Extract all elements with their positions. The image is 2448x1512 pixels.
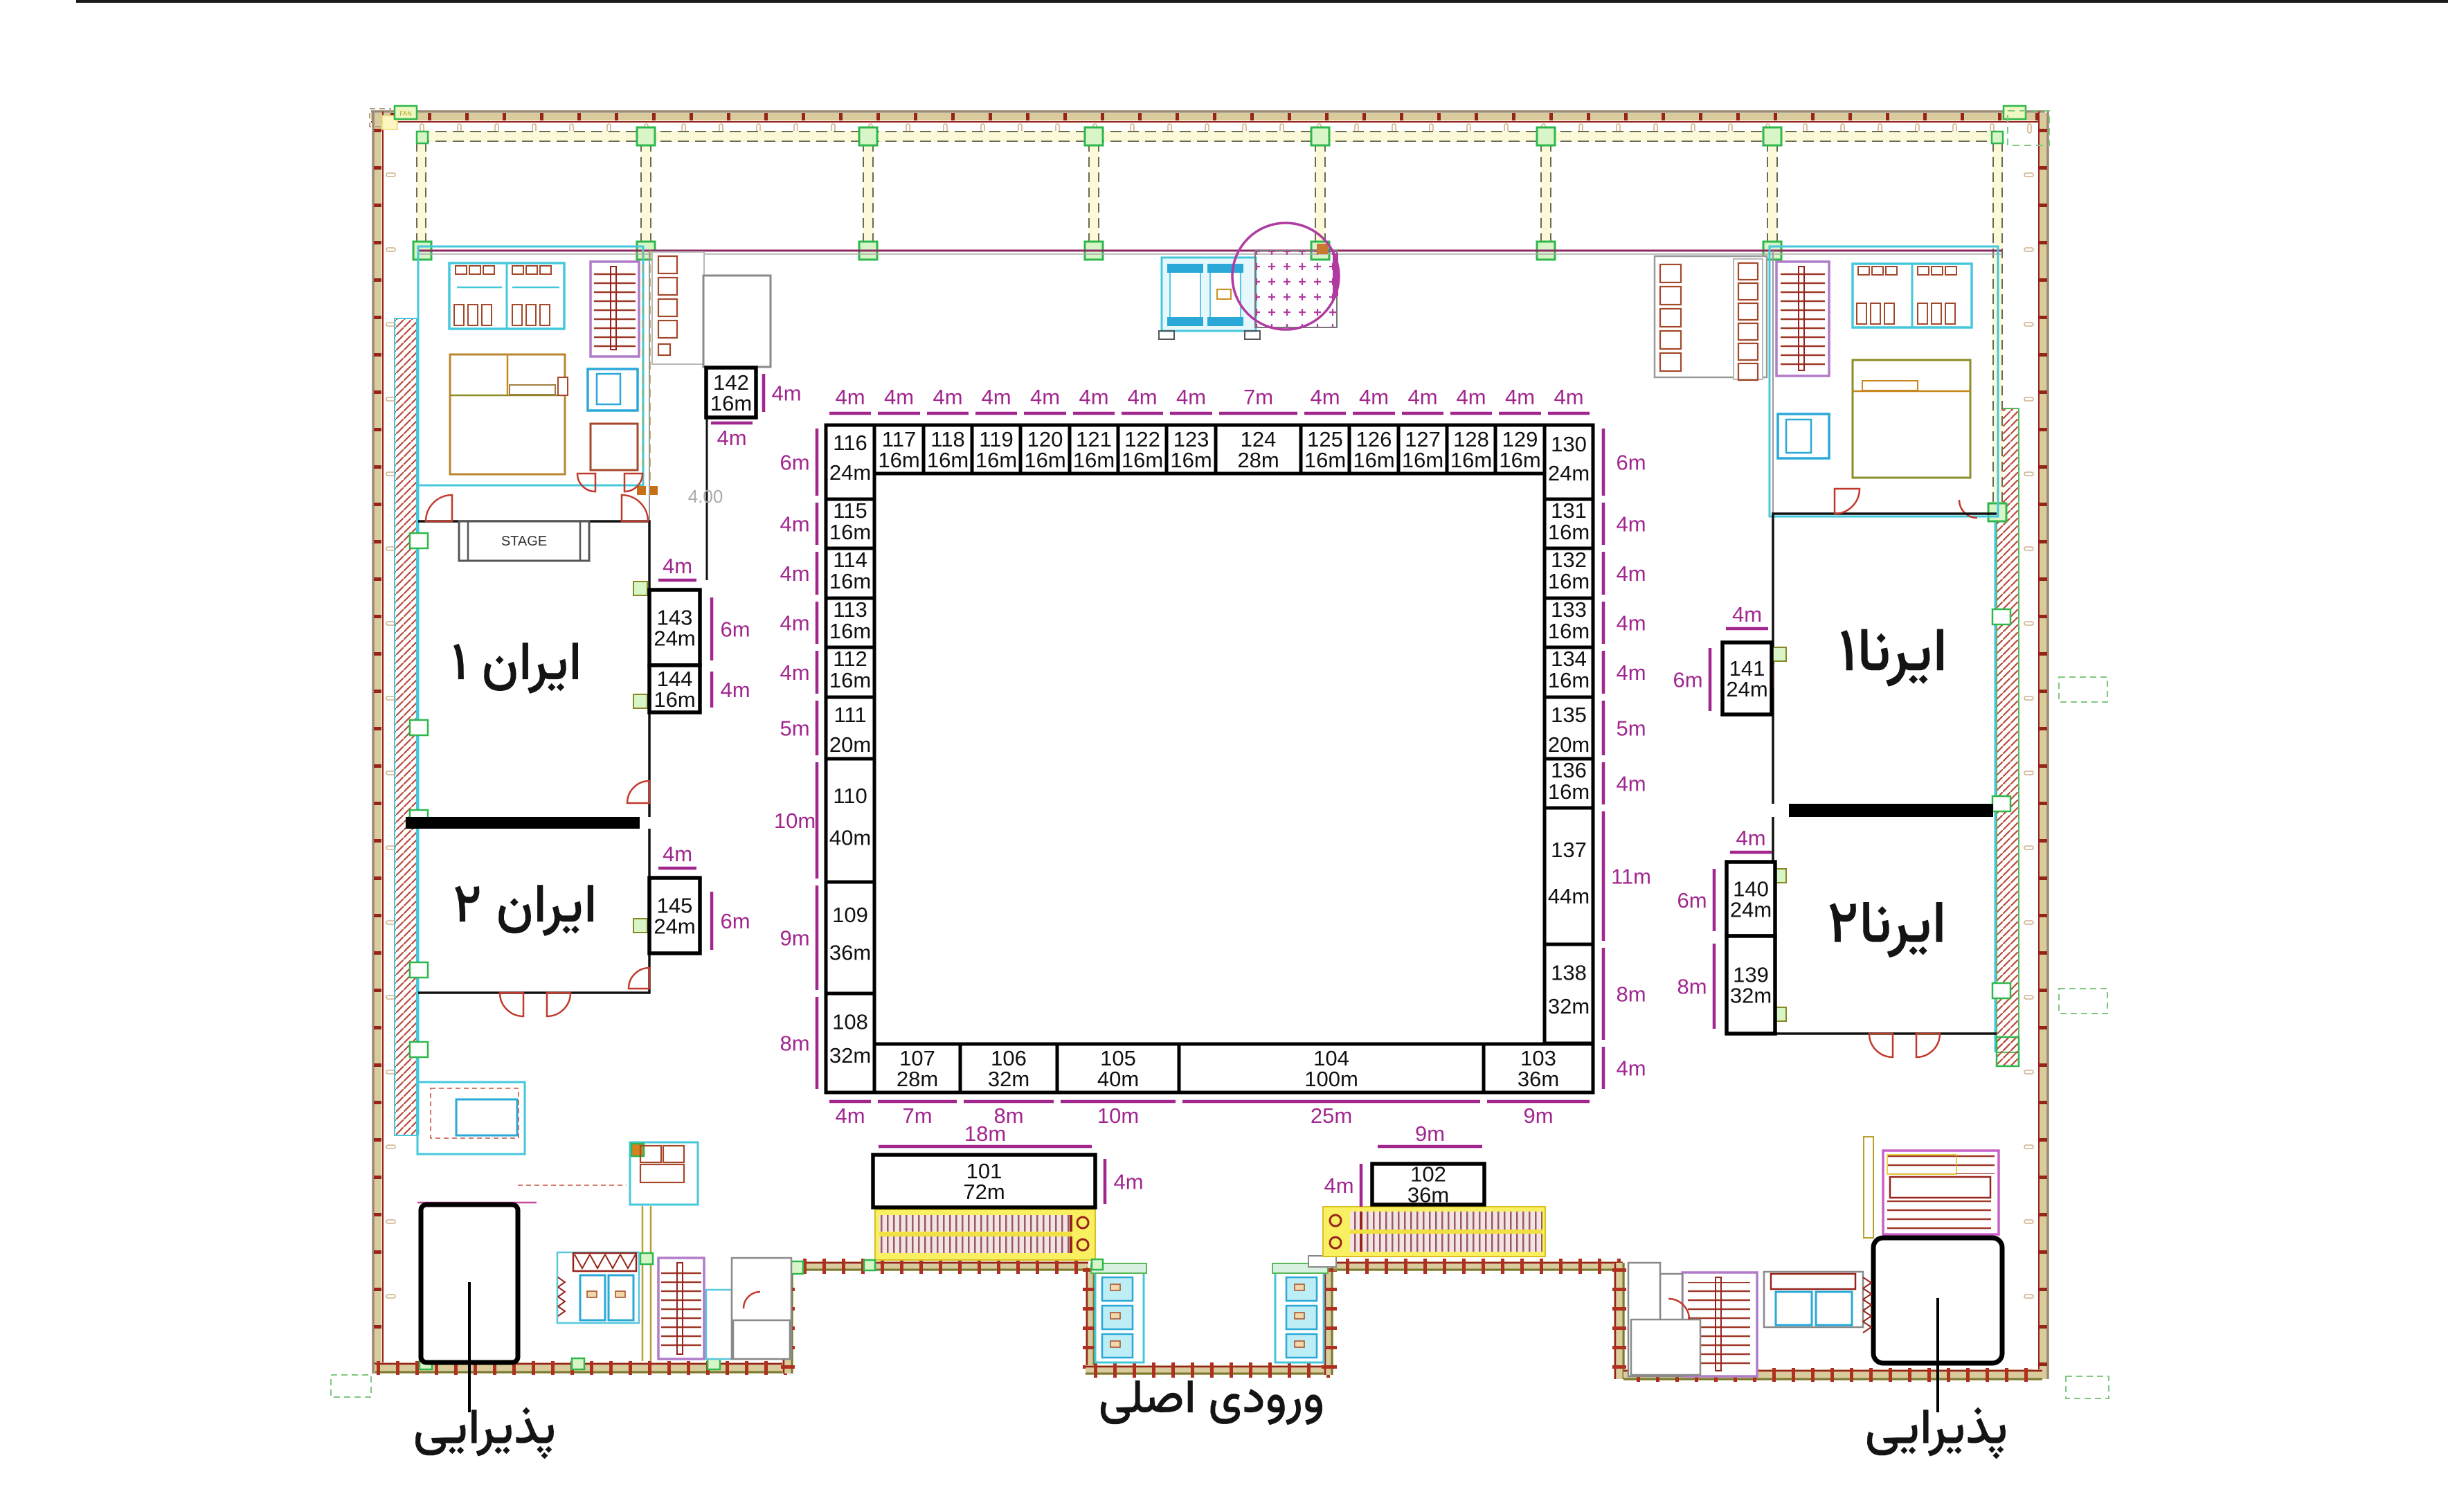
svg-text:72m: 72m <box>963 1180 1005 1204</box>
svg-text:110: 110 <box>833 784 867 808</box>
svg-text:4m: 4m <box>835 1104 865 1128</box>
svg-text:16m: 16m <box>1304 448 1346 472</box>
svg-text:4m: 4m <box>1359 385 1389 409</box>
svg-text:32m: 32m <box>1730 984 1772 1008</box>
svg-text:114: 114 <box>833 548 867 572</box>
svg-text:4m: 4m <box>1030 385 1060 409</box>
svg-text:6m: 6m <box>780 451 809 475</box>
svg-text:4m: 4m <box>780 611 809 636</box>
svg-text:24m: 24m <box>829 460 871 485</box>
svg-text:6m: 6m <box>720 618 750 642</box>
svg-text:4m: 4m <box>780 512 809 537</box>
svg-text:16m: 16m <box>829 668 871 692</box>
svg-text:16m: 16m <box>1499 448 1540 472</box>
svg-text:16m: 16m <box>654 687 695 712</box>
svg-text:16m: 16m <box>1122 448 1163 472</box>
svg-text:133: 133 <box>1551 597 1587 622</box>
svg-text:4m: 4m <box>1732 602 1762 627</box>
svg-text:7m: 7m <box>1243 385 1273 409</box>
svg-text:9m: 9m <box>1523 1104 1553 1128</box>
svg-text:16m: 16m <box>1353 448 1394 472</box>
svg-text:6m: 6m <box>720 909 750 933</box>
svg-text:8m: 8m <box>1677 975 1707 999</box>
svg-text:4m: 4m <box>1616 611 1646 636</box>
svg-text:4m: 4m <box>1324 1173 1353 1198</box>
svg-text:16m: 16m <box>1548 780 1590 804</box>
svg-text:4m: 4m <box>1407 385 1437 409</box>
svg-text:16m: 16m <box>975 448 1017 472</box>
svg-text:5m: 5m <box>1616 717 1646 741</box>
svg-text:4m: 4m <box>780 660 809 685</box>
svg-text:25m: 25m <box>1311 1104 1352 1128</box>
svg-text:137: 137 <box>1551 838 1587 862</box>
svg-text:4m: 4m <box>1616 561 1646 586</box>
svg-text:100m: 100m <box>1304 1067 1358 1091</box>
svg-text:6m: 6m <box>1677 888 1707 912</box>
svg-text:FAN: FAN <box>399 110 412 117</box>
svg-text:16m: 16m <box>710 391 752 415</box>
svg-text:18m: 18m <box>964 1122 1006 1146</box>
svg-text:16m: 16m <box>1170 448 1212 472</box>
svg-text:138: 138 <box>1551 960 1587 984</box>
svg-text:24m: 24m <box>1730 898 1772 922</box>
svg-text:4m: 4m <box>1616 1056 1646 1081</box>
svg-text:6m: 6m <box>1673 668 1702 692</box>
svg-text:16m: 16m <box>1402 448 1443 472</box>
svg-text:44m: 44m <box>1548 884 1590 908</box>
svg-text:20m: 20m <box>1548 732 1590 757</box>
svg-text:16m: 16m <box>1548 520 1590 544</box>
svg-text:4m: 4m <box>1456 385 1486 409</box>
svg-text:4m: 4m <box>1505 385 1535 409</box>
svg-text:4m: 4m <box>780 561 809 586</box>
svg-text:36m: 36m <box>829 941 871 965</box>
svg-text:4m: 4m <box>1310 385 1340 409</box>
svg-text:8m: 8m <box>780 1032 809 1056</box>
svg-text:11m: 11m <box>1611 865 1651 889</box>
svg-text:36m: 36m <box>1518 1067 1559 1091</box>
svg-text:4m: 4m <box>933 385 962 409</box>
svg-text:4m: 4m <box>771 381 801 406</box>
svg-text:16m: 16m <box>829 569 871 593</box>
svg-text:7m: 7m <box>902 1104 932 1128</box>
svg-text:24m: 24m <box>1548 461 1590 485</box>
svg-text:4m: 4m <box>1616 772 1646 796</box>
svg-text:4m: 4m <box>1176 385 1206 409</box>
svg-text:4m: 4m <box>981 385 1011 409</box>
svg-text:28m: 28m <box>1237 448 1279 472</box>
svg-text:16m: 16m <box>1073 448 1115 472</box>
svg-text:6m: 6m <box>1616 451 1646 475</box>
svg-text:111: 111 <box>834 703 866 727</box>
svg-text:16m: 16m <box>1548 569 1590 593</box>
svg-text:4m: 4m <box>1616 660 1646 685</box>
svg-text:4m: 4m <box>1554 385 1583 409</box>
svg-text:108: 108 <box>832 1009 868 1034</box>
svg-text:4m: 4m <box>835 385 865 409</box>
svg-text:4m: 4m <box>663 842 692 866</box>
svg-text:4m: 4m <box>884 385 914 409</box>
svg-text:32m: 32m <box>1548 994 1590 1018</box>
svg-text:36m: 36m <box>1407 1183 1449 1207</box>
svg-text:20m: 20m <box>829 732 871 757</box>
svg-text:131: 131 <box>1551 498 1587 523</box>
svg-text:135: 135 <box>1551 703 1587 727</box>
svg-text:115: 115 <box>833 498 867 523</box>
svg-text:10m: 10m <box>1097 1104 1139 1128</box>
svg-text:16m: 16m <box>878 448 919 472</box>
svg-text:28m: 28m <box>897 1067 938 1091</box>
svg-text:40m: 40m <box>829 826 871 850</box>
svg-text:9m: 9m <box>1415 1122 1445 1146</box>
svg-text:24m: 24m <box>1726 677 1767 701</box>
svg-text:8m: 8m <box>1616 982 1646 1007</box>
svg-text:16m: 16m <box>1548 668 1590 692</box>
svg-text:4m: 4m <box>663 554 692 578</box>
svg-text:16m: 16m <box>829 520 871 544</box>
svg-text:24m: 24m <box>654 915 695 939</box>
svg-text:4m: 4m <box>1113 1170 1143 1194</box>
svg-text:16m: 16m <box>1024 448 1065 472</box>
svg-text:24m: 24m <box>654 627 695 651</box>
svg-text:4.00: 4.00 <box>688 486 723 507</box>
svg-text:132: 132 <box>1551 548 1587 572</box>
svg-text:4m: 4m <box>1616 512 1646 537</box>
svg-text:9m: 9m <box>780 926 809 951</box>
svg-text:10m: 10m <box>774 809 816 833</box>
svg-text:16m: 16m <box>1548 619 1590 643</box>
svg-text:113: 113 <box>833 597 867 622</box>
svg-text:40m: 40m <box>1097 1067 1139 1091</box>
svg-text:4m: 4m <box>717 426 746 450</box>
svg-text:5m: 5m <box>780 717 809 741</box>
svg-text:4m: 4m <box>1736 826 1765 850</box>
svg-text:109: 109 <box>832 903 868 927</box>
svg-text:4m: 4m <box>1079 385 1108 409</box>
svg-text:16m: 16m <box>927 448 969 472</box>
svg-text:136: 136 <box>1551 758 1587 782</box>
svg-text:16m: 16m <box>829 619 871 643</box>
svg-text:4m: 4m <box>1127 385 1157 409</box>
svg-text:STAGE: STAGE <box>501 534 547 549</box>
svg-text:116: 116 <box>833 431 867 455</box>
svg-text:130: 130 <box>1551 432 1587 456</box>
svg-text:112: 112 <box>833 647 867 671</box>
svg-text:134: 134 <box>1551 647 1587 671</box>
svg-text:32m: 32m <box>988 1067 1029 1091</box>
svg-text:4m: 4m <box>720 678 750 702</box>
svg-text:32m: 32m <box>829 1043 871 1068</box>
svg-text:16m: 16m <box>1450 448 1492 472</box>
